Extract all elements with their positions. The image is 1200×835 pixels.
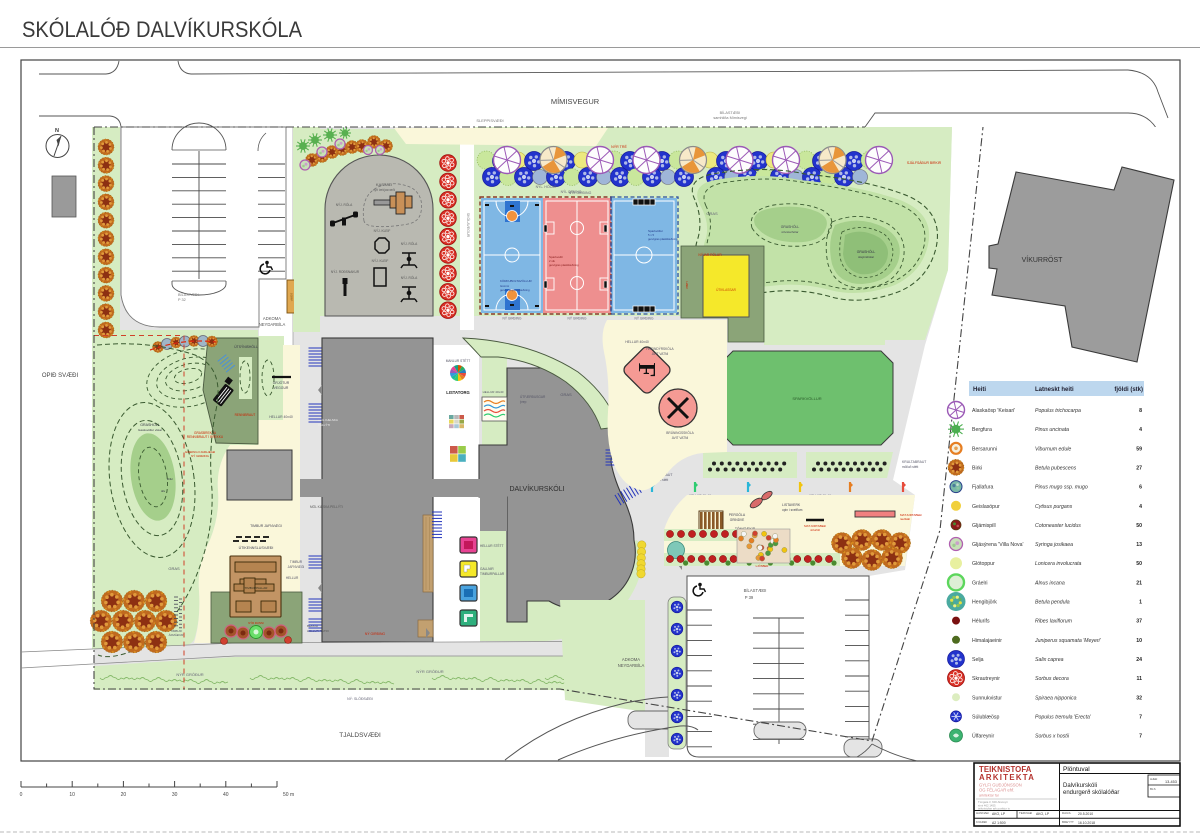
svg-text:Cotoneaster lucidus: Cotoneaster lucidus [1035, 523, 1081, 529]
svg-text:Cytisus purgans: Cytisus purgans [1035, 504, 1073, 510]
svg-text:NÝJ. ROÐSNAKUR: NÝJ. ROÐSNAKUR [331, 270, 360, 274]
svg-text:TJALDSVÆÐI: TJALDSVÆÐI [339, 732, 381, 739]
svg-text:7: 7 [1139, 734, 1142, 740]
svg-text:Fjallafura: Fjallafura [972, 485, 993, 491]
svg-text:21: 21 [1136, 580, 1142, 586]
svg-text:OPIÐ SVÆÐI: OPIÐ SVÆÐI [42, 373, 79, 379]
svg-text:Betula pendula: Betula pendula [1035, 600, 1070, 606]
svg-text:Glótoppur: Glótoppur [972, 561, 995, 567]
svg-text:SORP: SORP [290, 293, 294, 302]
svg-text:JAFNVÆGI: JAFNVÆGI [288, 565, 305, 569]
svg-text:gervigras plastklæðning: gervigras plastklæðning [549, 262, 579, 267]
svg-text:RENNIBRAUT: RENNIBRAUT [235, 413, 256, 417]
svg-text:24: 24 [1136, 657, 1142, 663]
svg-text:þrep: þrep [520, 400, 527, 404]
svg-text:rauðkált: rauðkált [900, 516, 910, 521]
svg-text:útsýnishólar: útsýnishólar [858, 255, 874, 259]
svg-text:NÝJ. RÓLA: NÝJ. RÓLA [401, 275, 418, 280]
svg-text:MÍMISVEGUR: MÍMISVEGUR [551, 97, 600, 106]
svg-text:ÚTIKENNSLUSVÆÐI: ÚTIKENNSLUSVÆÐI [239, 545, 274, 550]
svg-text:AKO, LP: AKO, LP [992, 812, 1006, 816]
svg-text:BÍLASTÆÐI: BÍLASTÆÐI [720, 111, 741, 115]
svg-text:0: 0 [20, 792, 23, 798]
svg-text:50 m: 50 m [283, 792, 294, 798]
svg-text:HELLUR: HELLUR [286, 576, 299, 580]
svg-text:Úlfareynir: Úlfareynir [972, 733, 994, 740]
svg-text:KRULTABRAUT: KRULTABRAUT [902, 460, 926, 464]
svg-text:GALLNIR: GALLNIR [480, 567, 494, 571]
svg-text:GRINDVE: GRINDVE [730, 518, 745, 522]
svg-text:Súlublæösp: Súlublæösp [972, 714, 1000, 720]
svg-text:NÝR RUNNI: NÝR RUNNI [248, 621, 264, 625]
svg-text:Sorbus decora: Sorbus decora [1035, 676, 1069, 682]
svg-text:samhliða Mímisvegi: samhliða Mímisvegi [713, 115, 746, 120]
svg-text:Gráelri: Gráelri [972, 580, 988, 586]
svg-text:6: 6 [1139, 485, 1142, 491]
svg-text:NÝR GRÓÐUR: NÝR GRÓÐUR [176, 672, 203, 677]
svg-text:Lonicera involucrata: Lonicera involucrata [1035, 561, 1082, 567]
svg-text:gervigras plastklæðning: gervigras plastklæðning [648, 236, 678, 241]
svg-text:NÝR TRÉ: NÝR TRÉ [611, 144, 627, 149]
svg-text:NÝJ. RÓLA: NÝJ. RÓLA [401, 241, 418, 246]
svg-text:20.5.2010: 20.5.2010 [1078, 812, 1093, 816]
svg-text:ÁFMÁÐUR: ÁFMÁÐUR [169, 633, 185, 637]
svg-text:SLEPPISVÆÐI: SLEPPISVÆÐI [476, 118, 503, 123]
svg-text:opin í sveiflum: opin í sveiflum [782, 508, 803, 512]
svg-text:10: 10 [1136, 638, 1142, 644]
svg-text:Betula pubescens: Betula pubescens [1035, 465, 1077, 471]
svg-text:Populus tremula 'Erecta': Populus tremula 'Erecta' [1035, 714, 1092, 720]
svg-text:Gljámispill: Gljámispill [972, 523, 996, 529]
svg-text:ÚTIKLASSAR: ÚTIKLASSAR [716, 287, 737, 292]
svg-text:mölluð stétt: mölluð stétt [902, 464, 918, 469]
svg-text:NÝL. HÓLAR: NÝL. HÓLAR [536, 184, 557, 189]
svg-text:Alnus incana: Alnus incana [1034, 580, 1065, 586]
svg-text:NÝJ. KLEIF: NÝJ. KLEIF [372, 259, 389, 263]
svg-text:TIMBUR JAFNVÆGI: TIMBUR JAFNVÆGI [250, 524, 282, 528]
svg-text:TIMBURPALLAR: TIMBURPALLAR [480, 572, 505, 576]
svg-text:Plöntuval: Plöntuval [1063, 766, 1090, 773]
svg-text:Dalvíkurskóli: Dalvíkurskóli [1063, 783, 1097, 789]
svg-text:4: 4 [1139, 427, 1142, 433]
svg-text:BREYTT: BREYTT [1062, 820, 1074, 824]
svg-text:KVARÐI: KVARÐI [976, 820, 987, 824]
svg-text:Spiraea nipponica: Spiraea nipponica [1035, 695, 1077, 701]
svg-text:KÖRFUBOLTAVÖLLUR: KÖRFUBOLTAVÖLLUR [500, 279, 533, 283]
svg-text:ADKOMA: ADKOMA [622, 657, 640, 662]
svg-text:NÝJAR RÓLUR: NÝJAR RÓLUR [698, 252, 722, 257]
svg-text:SPARKVÖLLUR: SPARKVÖLLUR [792, 396, 821, 401]
svg-text:MÖL KÆSKA PELLÝTI: MÖL KÆSKA PELLÝTI [310, 505, 343, 509]
svg-text:AVIT VATNI: AVIT VATNI [652, 352, 669, 356]
svg-text:AVIT VATNI: AVIT VATNI [672, 436, 689, 440]
svg-text:Heiti: Heiti [973, 387, 986, 393]
svg-text:TIMBURPALLAR: TIMBURPALLAR [245, 586, 269, 590]
svg-text:LISTAVERK: LISTAVERK [782, 503, 801, 507]
svg-text:SKÓLAVEGUR: SKÓLAVEGUR [466, 213, 471, 238]
svg-text:TEIKNAÐ: TEIKNAÐ [1019, 811, 1033, 815]
svg-text:HELLUR 40x40: HELLUR 40x40 [625, 340, 649, 344]
svg-text:27: 27 [1136, 465, 1142, 471]
svg-text:ARKITEKTA: ARKITEKTA [979, 773, 1035, 782]
svg-text:7: 7 [1139, 714, 1142, 720]
svg-text:VEGGUR: VEGGUR [274, 386, 289, 390]
svg-text:1: 1 [1139, 600, 1142, 606]
svg-text:13: 13 [1136, 542, 1142, 548]
svg-text:NÝ GIRÐING: NÝ GIRÐING [503, 317, 522, 321]
svg-text:Himalajaeinir: Himalajaeinir [972, 638, 1002, 644]
svg-text:Juniperus squamata 'Meyeri': Juniperus squamata 'Meyeri' [1034, 638, 1102, 644]
svg-text:AKO, LP: AKO, LP [1036, 812, 1050, 816]
svg-text:20: 20 [121, 792, 127, 798]
svg-text:PERGÓLA: PERGÓLA [729, 512, 746, 517]
svg-text:HELLUR 40x40: HELLUR 40x40 [269, 415, 293, 419]
svg-text:N: N [55, 128, 59, 134]
svg-text:útivistarhólar: útivistarhólar [781, 230, 798, 234]
svg-text:NEYDARBÍLA: NEYDARBÍLA [259, 322, 286, 327]
svg-text:4: 4 [1139, 504, 1142, 510]
svg-text:59: 59 [1136, 446, 1142, 452]
svg-text:BRÚNINGSSKÓLA: BRÚNINGSSKÓLA [666, 430, 694, 435]
svg-text:NÝ GIRÐING: NÝ GIRÐING [635, 317, 654, 321]
svg-text:Selja: Selja [972, 657, 984, 663]
svg-text:GRAS: GRAS [706, 211, 718, 216]
svg-text:11: 11 [1137, 676, 1143, 682]
svg-text:fjöldi (stk): fjöldi (stk) [1114, 387, 1143, 393]
svg-text:PELLÝTI: PELLÝTI [318, 423, 330, 427]
svg-text:nýtt tækjasvæði: nýtt tækjasvæði [373, 187, 396, 192]
svg-text:HELLUR STÉTT: HELLUR STÉTT [480, 543, 504, 548]
svg-text:LISTATORG: LISTATORG [446, 390, 470, 395]
svg-text:NÝJ. KLEIF: NÝJ. KLEIF [374, 229, 391, 233]
svg-text:8: 8 [1139, 408, 1142, 414]
svg-text:Pinus uncinata: Pinus uncinata [1035, 427, 1069, 433]
svg-text:VÍKURRÖST: VÍKURRÖST [1022, 255, 1064, 264]
svg-text:TIMBUR: TIMBUR [290, 560, 303, 564]
svg-text:13-453: 13-453 [1165, 780, 1177, 784]
svg-text:Sunnukvistur: Sunnukvistur [972, 695, 1002, 701]
svg-text:SKÓLALÓÐ DALVÍKURSKÓLA: SKÓLALÓÐ DALVÍKURSKÓLA [22, 17, 302, 42]
svg-text:30: 30 [172, 792, 178, 798]
svg-text:RENNIBRAUT Í BREKKU: RENNIBRAUT Í BREKKU [187, 435, 224, 439]
svg-text:50: 50 [1136, 523, 1142, 529]
svg-text:Geislasópur: Geislasópur [972, 504, 1000, 510]
svg-text:ADKOMA: ADKOMA [263, 316, 281, 321]
svg-text:GRASHÓLL: GRASHÓLL [140, 422, 160, 427]
svg-text:KASTALI: KASTALI [376, 182, 392, 187]
svg-text:BÍLASTÆÐI: BÍLASTÆÐI [178, 293, 199, 297]
svg-text:Viburnum edule: Viburnum edule [1035, 446, 1071, 452]
svg-text:Populus trichocarpa: Populus trichocarpa [1035, 408, 1081, 414]
svg-text:Alaskaösp 'Keisari': Alaskaösp 'Keisari' [972, 408, 1015, 414]
svg-text:Ribes laxiflorum: Ribes laxiflorum [1035, 619, 1073, 625]
svg-text:F: F [633, 363, 659, 378]
svg-text:NÝ GIRÐING: NÝ GIRÐING [365, 632, 386, 636]
svg-text:40: 40 [223, 792, 229, 798]
svg-text:Bersarunni: Bersarunni [972, 446, 997, 452]
svg-text:teiknistofan ark punktur is: teiknistofan ark punktur is [978, 807, 1010, 811]
svg-text:A2 1:500: A2 1:500 [992, 821, 1006, 825]
svg-text:NÝR GRÓÐUR: NÝR GRÓÐUR [416, 669, 443, 674]
svg-text:Pinus mugo ssp. mugo: Pinus mugo ssp. mugo [1035, 485, 1088, 491]
svg-text:ÚTSÝNISHÓLL: ÚTSÝNISHÓLL [234, 344, 258, 349]
svg-text:NEYDARBÍLA: NEYDARBÍLA [618, 663, 645, 668]
svg-text:niðurföll: niðurföll [810, 527, 820, 532]
svg-text:gervigras plastklæðning: gervigras plastklæðning [500, 287, 530, 292]
svg-text:HÆÐ: HÆÐ [1150, 777, 1158, 781]
svg-text:OG FÉLAGAR ehf.: OG FÉLAGAR ehf. [979, 788, 1014, 793]
svg-text:Skrautreynir: Skrautreynir [972, 676, 1000, 682]
svg-text:NÝL OPNING: NÝL OPNING [561, 190, 582, 194]
svg-text:Birki: Birki [972, 465, 982, 471]
svg-text:Latneskt heiti: Latneskt heiti [1035, 387, 1074, 393]
svg-text:ÚTFÆRÐUSGAR: ÚTFÆRÐUSGAR [520, 394, 546, 399]
svg-text:Hengibjörk: Hengibjörk [972, 600, 997, 606]
svg-text:endurgerð skólalóðar: endurgerð skólalóðar [1063, 789, 1119, 796]
svg-text:Bergfura: Bergfura [972, 427, 992, 433]
svg-text:BÍLASTÆÐI: BÍLASTÆÐI [744, 588, 767, 593]
svg-text:arkitektar fai: arkitektar fai [979, 794, 999, 798]
svg-text:NÝ GIRÐING: NÝ GIRÐING [568, 317, 587, 321]
svg-text:37: 37 [1136, 619, 1142, 625]
svg-text:HÆÐ: HÆÐ [685, 281, 689, 289]
svg-text:GRAS: GRAS [560, 392, 572, 397]
svg-text:HANNAÐ: HANNAÐ [976, 811, 990, 815]
svg-text:HREINDÝRSKÓLA: HREINDÝRSKÓLA [646, 346, 674, 351]
svg-text:NÝ GIRÐING: NÝ GIRÐING [191, 454, 210, 458]
svg-text:BLS: BLS [1150, 787, 1156, 791]
svg-text:NÝJ. RÓLA: NÝJ. RÓLA [336, 202, 353, 207]
svg-text:DAGS.: DAGS. [1062, 811, 1072, 815]
svg-text:MANLUR STÉTT: MANLUR STÉTT [446, 358, 470, 363]
svg-text:Syringa josikaea: Syringa josikaea [1035, 542, 1073, 548]
svg-text:16.10.2018: 16.10.2018 [1078, 821, 1095, 825]
svg-text:DALVÍKURSKÓLI: DALVÍKURSKÓLI [509, 484, 564, 493]
svg-text:10: 10 [69, 792, 75, 798]
svg-text:Gljásýrena 'Villa Nova': Gljásýrena 'Villa Nova' [972, 542, 1023, 548]
svg-text:Salix caprea: Salix caprea [1035, 657, 1064, 663]
svg-text:50: 50 [1136, 561, 1142, 567]
svg-text:GRASHÓLL: GRASHÓLL [857, 249, 876, 254]
svg-text:P 32: P 32 [178, 298, 186, 302]
svg-text:GRASHÓLL: GRASHÓLL [781, 224, 800, 229]
svg-text:GRAS: GRAS [168, 566, 180, 571]
svg-text:Sorbus x hostii: Sorbus x hostii [1035, 734, 1070, 740]
svg-text:P 39: P 39 [745, 595, 754, 600]
svg-text:SJÁLFSÁÐUR BIRKIR: SJÁLFSÁÐUR BIRKIR [907, 161, 942, 165]
svg-text:Hélurifs: Hélurifs [972, 619, 990, 625]
svg-text:útiv: útiv [161, 489, 166, 493]
svg-text:32: 32 [1136, 695, 1142, 701]
svg-text:HELLUR 40x40: HELLUR 40x40 [483, 390, 504, 394]
svg-text:Gæsluvöllur vistar: Gæsluvöllur vistar [138, 428, 162, 432]
svg-text:NÝ: SLÓÐSÆÐI: NÝ: SLÓÐSÆÐI [347, 696, 373, 701]
svg-text:klifur: klifur [167, 477, 173, 481]
svg-text:LJÓSBER: LJÓSBER [756, 563, 769, 568]
svg-text:GRJÓTUR: GRJÓTUR [273, 380, 290, 385]
